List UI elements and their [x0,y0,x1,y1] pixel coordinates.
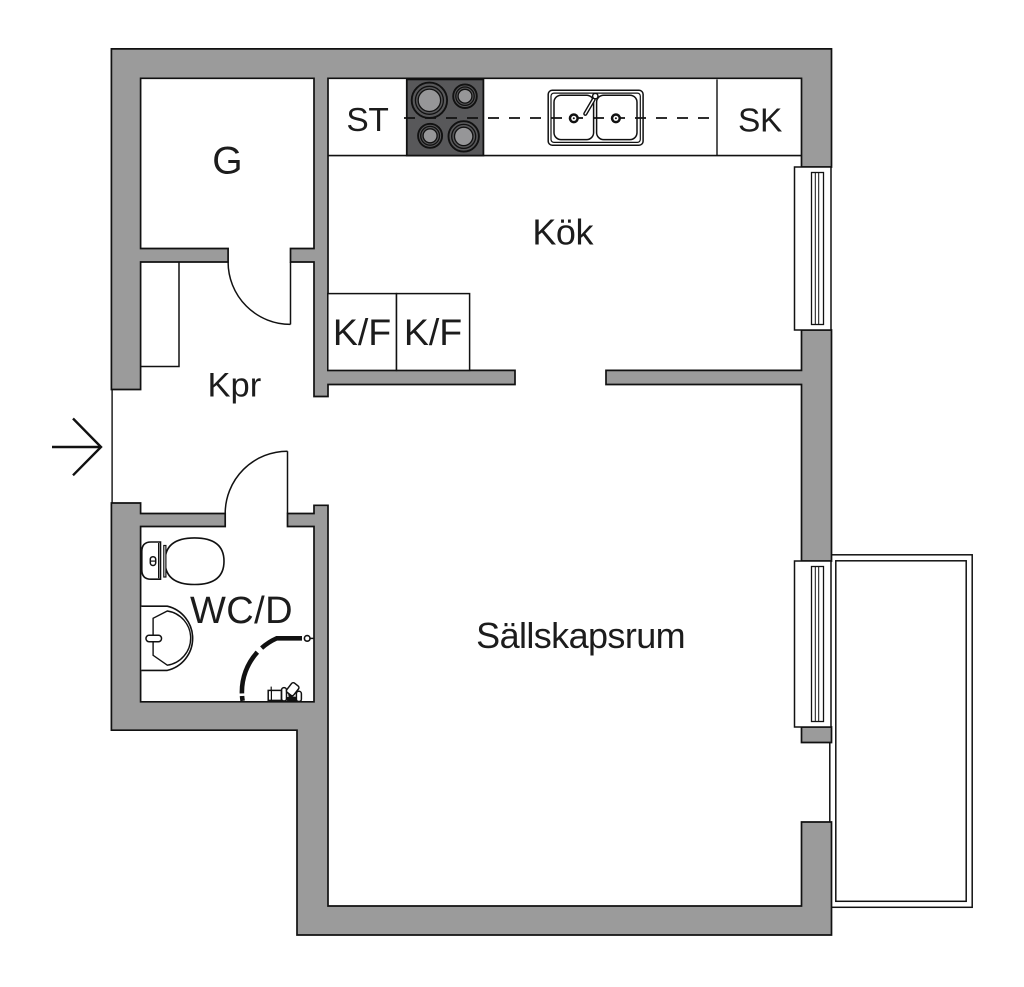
svg-text:K/F: K/F [404,311,462,353]
svg-text:Sällskapsrum: Sällskapsrum [476,615,685,656]
svg-text:WC/D: WC/D [190,590,293,632]
svg-text:Kök: Kök [532,212,594,253]
svg-text:SK: SK [738,103,782,140]
svg-text:K/F: K/F [333,311,391,353]
svg-text:G: G [212,139,242,182]
svg-text:ST: ST [346,102,388,139]
svg-text:Kpr: Kpr [208,367,262,405]
